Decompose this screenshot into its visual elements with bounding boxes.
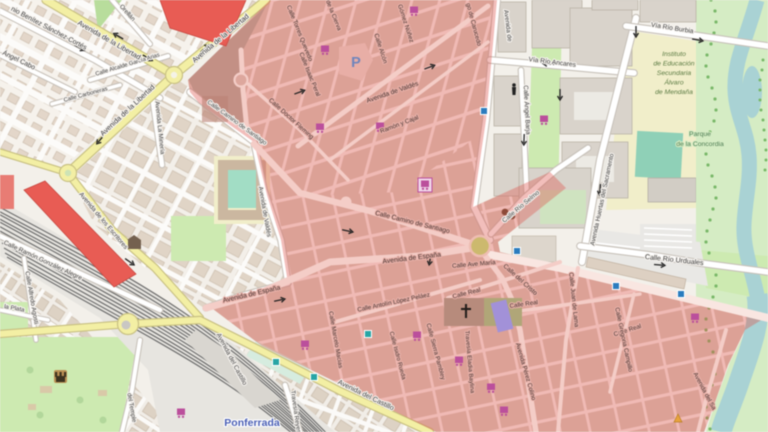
svg-text:de la Concordia: de la Concordia bbox=[676, 141, 724, 148]
svg-text:Ponferrada: Ponferrada bbox=[224, 417, 280, 429]
svg-text:P: P bbox=[351, 55, 361, 71]
svg-text:de Educación: de Educación bbox=[653, 61, 694, 68]
svg-text:Parque: Parque bbox=[689, 131, 711, 138]
svg-text:Secundaria: Secundaria bbox=[657, 70, 692, 77]
svg-text:Instituto: Instituto bbox=[662, 51, 686, 58]
svg-text:Álvaro: Álvaro bbox=[663, 78, 683, 87]
svg-text:de Mendaña: de Mendaña bbox=[655, 89, 693, 96]
